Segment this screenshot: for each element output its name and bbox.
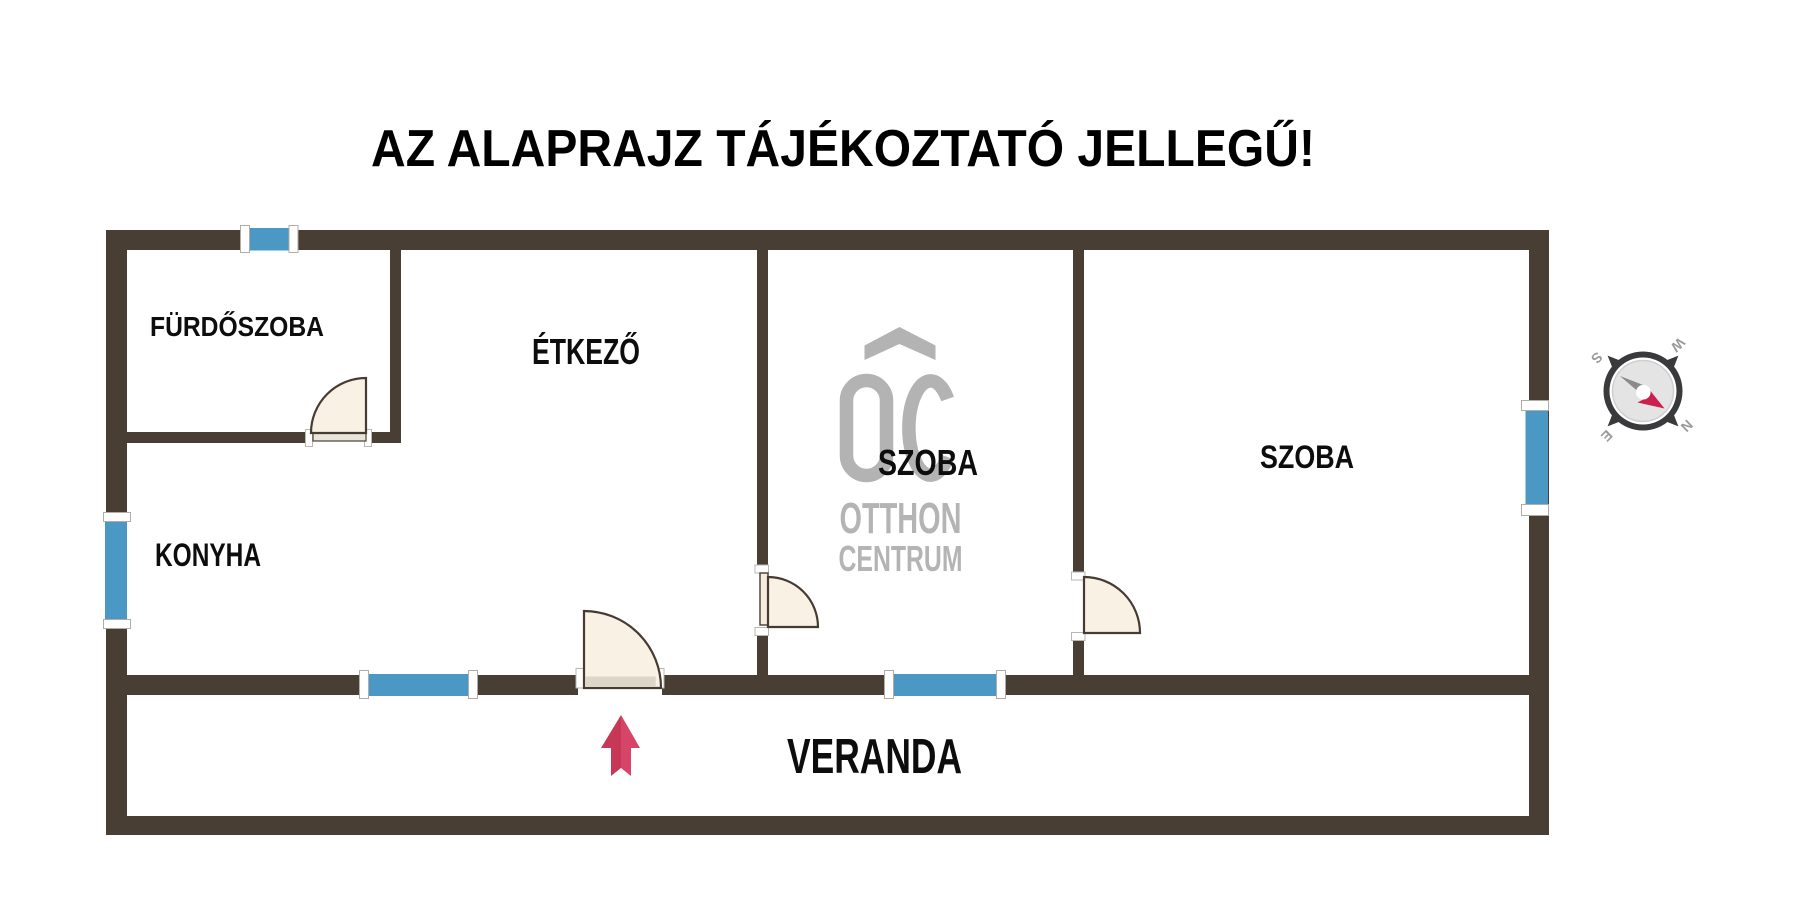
svg-text:KONYHA: KONYHA — [155, 537, 261, 573]
svg-text:W: W — [1667, 335, 1688, 356]
svg-text:FÜRDŐSZOBA: FÜRDŐSZOBA — [150, 311, 324, 342]
svg-text:OTTHON: OTTHON — [840, 495, 962, 543]
svg-text:VERANDA: VERANDA — [787, 730, 962, 784]
svg-text:AZ ALAPRAJZ TÁJÉKOZTATÓ JELLEG: AZ ALAPRAJZ TÁJÉKOZTATÓ JELLEGŰ! — [371, 119, 1315, 178]
svg-text:S: S — [1588, 349, 1606, 367]
svg-text:SZOBA: SZOBA — [878, 442, 978, 483]
svg-text:E: E — [1598, 427, 1616, 445]
svg-text:CENTRUM: CENTRUM — [839, 538, 963, 579]
svg-text:N: N — [1678, 417, 1696, 435]
svg-text:SZOBA: SZOBA — [1260, 439, 1354, 475]
svg-text:ÉTKEZŐ: ÉTKEZŐ — [532, 330, 640, 372]
